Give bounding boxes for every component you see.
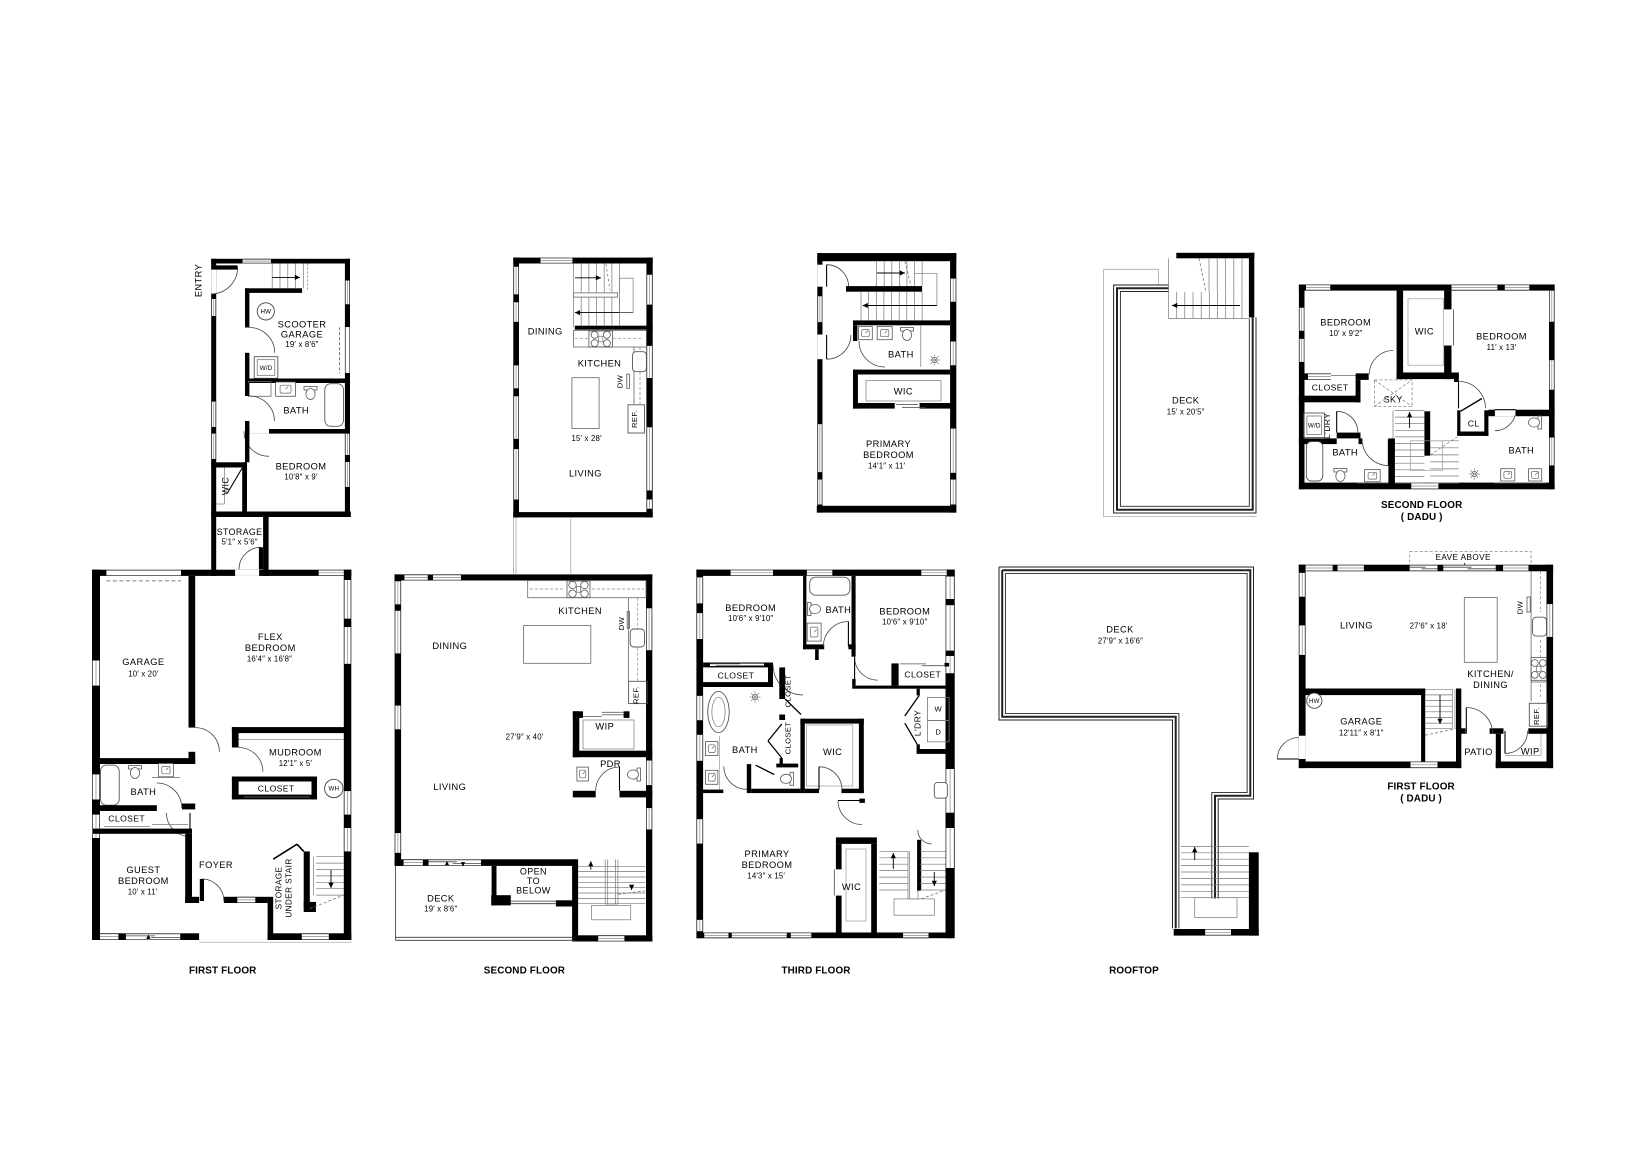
svg-text:BATH: BATH bbox=[283, 406, 309, 416]
svg-text:CLOSET: CLOSET bbox=[258, 784, 295, 794]
svg-text:BEDROOM: BEDROOM bbox=[118, 876, 169, 886]
svg-text:27′9″ x 40′: 27′9″ x 40′ bbox=[506, 733, 544, 742]
svg-text:LIVING: LIVING bbox=[569, 469, 602, 479]
svg-text:SKY: SKY bbox=[1384, 395, 1403, 405]
svg-text:BEDROOM: BEDROOM bbox=[725, 603, 776, 613]
svg-text:10′6″ x 9′10″: 10′6″ x 9′10″ bbox=[882, 618, 927, 627]
svg-text:GARAGE: GARAGE bbox=[122, 657, 164, 667]
svg-text:10′ x 9′2″: 10′ x 9′2″ bbox=[1329, 329, 1362, 338]
svg-text:BEDROOM: BEDROOM bbox=[1320, 318, 1371, 328]
svg-text:REF.: REF. bbox=[632, 686, 641, 704]
svg-text:( DADU ): ( DADU ) bbox=[1401, 512, 1443, 523]
svg-text:FOYER: FOYER bbox=[199, 860, 233, 870]
svg-text:STORAGE: STORAGE bbox=[217, 527, 263, 537]
svg-text:BATH: BATH bbox=[131, 787, 157, 797]
svg-text:15′ x 20′5″: 15′ x 20′5″ bbox=[1167, 408, 1205, 417]
svg-text:WIP: WIP bbox=[595, 722, 614, 732]
svg-text:DW: DW bbox=[617, 616, 626, 630]
svg-text:DW: DW bbox=[1516, 600, 1525, 614]
svg-text:16′4″ x 16′8″: 16′4″ x 16′8″ bbox=[247, 655, 292, 664]
svg-text:10′ x 20′: 10′ x 20′ bbox=[128, 669, 159, 678]
svg-text:GARAGE: GARAGE bbox=[281, 329, 323, 339]
svg-text:FIRST FLOOR: FIRST FLOOR bbox=[189, 966, 256, 977]
svg-text:DECK: DECK bbox=[1172, 396, 1200, 406]
svg-text:BELOW: BELOW bbox=[516, 885, 551, 895]
svg-text:10′6″ x 9′10″: 10′6″ x 9′10″ bbox=[728, 614, 773, 623]
svg-text:L′DRY: L′DRY bbox=[1322, 413, 1332, 439]
svg-text:BEDROOM: BEDROOM bbox=[276, 461, 327, 471]
svg-text:5′1″ x 5′6″: 5′1″ x 5′6″ bbox=[221, 538, 257, 547]
svg-text:HW: HW bbox=[1309, 698, 1320, 705]
svg-text:EAVE ABOVE: EAVE ABOVE bbox=[1436, 553, 1491, 562]
svg-text:ENTRY: ENTRY bbox=[194, 264, 204, 297]
svg-text:DINING: DINING bbox=[432, 641, 467, 651]
svg-text:FIRST FLOOR: FIRST FLOOR bbox=[1387, 782, 1454, 793]
svg-text:CLOSET: CLOSET bbox=[718, 671, 755, 681]
svg-text:BEDROOM: BEDROOM bbox=[742, 860, 793, 870]
svg-text:KITCHEN: KITCHEN bbox=[558, 606, 602, 616]
svg-text:D: D bbox=[935, 728, 941, 737]
svg-text:DW: DW bbox=[616, 374, 625, 388]
svg-text:SECOND FLOOR: SECOND FLOOR bbox=[484, 966, 565, 977]
svg-text:REF.: REF. bbox=[630, 410, 639, 428]
svg-text:LIVING: LIVING bbox=[1340, 621, 1373, 631]
svg-text:PRIMARY: PRIMARY bbox=[866, 439, 911, 449]
svg-text:BATH: BATH bbox=[1332, 447, 1358, 457]
svg-text:UNDER STAIR: UNDER STAIR bbox=[285, 858, 294, 917]
svg-text:WIC: WIC bbox=[1415, 327, 1434, 337]
svg-text:SECOND FLOOR: SECOND FLOOR bbox=[1381, 500, 1462, 511]
svg-text:14′1″ x 11′: 14′1″ x 11′ bbox=[868, 462, 906, 471]
svg-text:W/D: W/D bbox=[260, 365, 273, 372]
svg-text:KITCHEN: KITCHEN bbox=[578, 359, 622, 369]
svg-text:MUDROOM: MUDROOM bbox=[269, 748, 322, 758]
svg-text:10′8″ x 9′: 10′8″ x 9′ bbox=[284, 472, 318, 481]
svg-text:CLOSET: CLOSET bbox=[1312, 382, 1349, 392]
svg-text:KITCHEN/: KITCHEN/ bbox=[1467, 669, 1514, 679]
svg-text:W/D: W/D bbox=[1308, 423, 1321, 430]
svg-text:CLOSET: CLOSET bbox=[904, 670, 941, 680]
svg-text:DECK: DECK bbox=[427, 894, 455, 904]
svg-text:LIVING: LIVING bbox=[433, 782, 466, 792]
svg-text:WIC: WIC bbox=[842, 882, 861, 892]
svg-text:CL: CL bbox=[1468, 419, 1480, 429]
svg-text:12′1″ x 5′: 12′1″ x 5′ bbox=[279, 759, 313, 768]
svg-text:STORAGE: STORAGE bbox=[275, 867, 284, 910]
svg-text:CLOSET: CLOSET bbox=[784, 722, 793, 755]
svg-text:SCOOTER: SCOOTER bbox=[278, 319, 327, 329]
svg-text:19′ x 8′6″: 19′ x 8′6″ bbox=[285, 340, 318, 349]
svg-text:BATH: BATH bbox=[888, 350, 914, 360]
svg-text:DINING: DINING bbox=[1473, 680, 1508, 690]
svg-text:11′ x 13′: 11′ x 13′ bbox=[1487, 343, 1517, 352]
svg-text:CLOSET: CLOSET bbox=[108, 814, 145, 824]
svg-text:GUEST: GUEST bbox=[126, 865, 160, 875]
svg-text:WIC: WIC bbox=[894, 386, 913, 396]
svg-text:ROOFTOP: ROOFTOP bbox=[1109, 966, 1159, 977]
svg-text:THIRD FLOOR: THIRD FLOOR bbox=[781, 966, 850, 977]
svg-text:L′DRY: L′DRY bbox=[912, 710, 922, 736]
svg-text:WIC: WIC bbox=[823, 747, 842, 757]
svg-text:REF.: REF. bbox=[1532, 707, 1541, 725]
svg-text:GARAGE: GARAGE bbox=[1340, 717, 1382, 727]
svg-text:BEDROOM: BEDROOM bbox=[863, 450, 914, 460]
svg-text:HW: HW bbox=[260, 309, 271, 316]
svg-text:15′ x 28′: 15′ x 28′ bbox=[571, 434, 602, 443]
svg-text:BATH: BATH bbox=[1508, 446, 1534, 456]
svg-text:19′ x 8′6″: 19′ x 8′6″ bbox=[424, 905, 457, 914]
svg-text:BEDROOM: BEDROOM bbox=[1476, 332, 1527, 342]
svg-text:27′6″ x 18′: 27′6″ x 18′ bbox=[1410, 622, 1448, 631]
svg-text:12′11″ x 8′1″: 12′11″ x 8′1″ bbox=[1339, 728, 1384, 737]
svg-text:BATH: BATH bbox=[732, 745, 758, 755]
svg-text:WIP: WIP bbox=[1521, 747, 1540, 757]
svg-text:DECK: DECK bbox=[1106, 625, 1134, 635]
svg-text:W: W bbox=[935, 705, 943, 714]
svg-text:( DADU ): ( DADU ) bbox=[1400, 793, 1442, 804]
svg-text:PATIO: PATIO bbox=[1464, 747, 1493, 757]
svg-text:WH: WH bbox=[328, 786, 339, 793]
svg-text:DINING: DINING bbox=[528, 327, 563, 337]
svg-text:BEDROOM: BEDROOM bbox=[245, 643, 296, 653]
svg-text:PRIMARY: PRIMARY bbox=[745, 849, 790, 859]
svg-text:PDR: PDR bbox=[600, 759, 621, 769]
svg-text:BATH: BATH bbox=[826, 605, 852, 615]
svg-text:14′3″ x 15′: 14′3″ x 15′ bbox=[747, 872, 785, 881]
svg-text:10′ x 11′: 10′ x 11′ bbox=[128, 888, 158, 897]
svg-text:FLEX: FLEX bbox=[258, 632, 283, 642]
svg-text:27′9″ x 16′6″: 27′9″ x 16′6″ bbox=[1098, 637, 1143, 646]
svg-text:WIC: WIC bbox=[221, 477, 231, 496]
svg-text:BEDROOM: BEDROOM bbox=[879, 607, 930, 617]
